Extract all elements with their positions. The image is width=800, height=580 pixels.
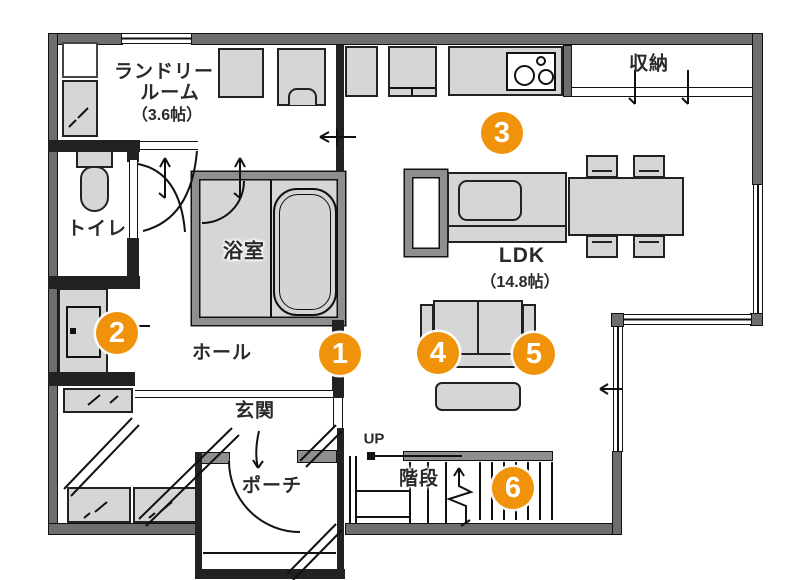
marker-6: 6 (492, 467, 534, 509)
hatch-strip (64, 418, 139, 496)
coffee-table (435, 382, 521, 411)
burner-small (536, 56, 546, 66)
window-right (753, 184, 763, 314)
window-east-step (623, 314, 752, 325)
bathroom-room (192, 172, 345, 325)
bathtub (273, 188, 337, 316)
washbasin-faucet (70, 328, 76, 334)
dining-chair (586, 235, 618, 258)
side-cabinet (62, 80, 98, 137)
closet-front-line (572, 87, 752, 97)
wall-right-upper (752, 33, 763, 185)
up-start-dot (367, 452, 375, 460)
label-bath: 浴室 (223, 235, 265, 264)
dining-table (568, 177, 684, 236)
label-ldk: LDK (499, 244, 545, 268)
genkan-opening (333, 398, 343, 428)
stairs-break-arrow (449, 468, 471, 526)
kitchen-island (447, 172, 567, 243)
marker-5: 5 (513, 333, 555, 375)
refrigerator (388, 46, 437, 97)
dining-chair (633, 155, 665, 178)
stairs-handrail (403, 451, 553, 461)
window-top (121, 33, 193, 44)
label-ldk-size: （14.8帖） (480, 268, 559, 292)
tall-cabinet (345, 46, 378, 97)
opening-arrow (159, 158, 170, 198)
island-side-unit (405, 170, 447, 256)
dining-chair (633, 235, 665, 258)
wall-washroom-bottom (48, 372, 135, 386)
corner-cabinet (62, 42, 98, 78)
toilet-door-arc (138, 164, 185, 232)
wall-porch-right (337, 428, 344, 578)
wall-bottom-stairs (345, 523, 622, 535)
burner-mid (538, 69, 554, 85)
dining-chair (586, 155, 618, 178)
porch-door-stub-left (200, 452, 230, 464)
wall-bottom-left (48, 523, 202, 535)
genkan-cabinet-left (67, 487, 131, 523)
island-sink (458, 180, 522, 221)
label-porch: ポーチ (242, 471, 302, 498)
wall-east-lower (612, 451, 622, 535)
washer (218, 48, 264, 98)
label-toilet: トイレ (67, 214, 127, 241)
wall-top-main (191, 33, 763, 45)
island-lower-line (449, 225, 565, 227)
laundry-door-arc (143, 151, 197, 231)
stairs-left-edge (350, 456, 356, 523)
shoe-cabinet-upper (63, 388, 133, 413)
toilet-bowl (80, 166, 109, 212)
entry-arrow (253, 431, 263, 468)
porch-wall-bottom (195, 569, 345, 579)
burner-large (514, 65, 535, 86)
laundry-door-opening (140, 141, 198, 150)
label-genkan: 玄関 (235, 396, 275, 423)
porch-door-stub-right (297, 450, 337, 463)
marker-2: 2 (96, 312, 138, 354)
marker-3: 3 (481, 112, 523, 154)
wall-corner-step (611, 313, 624, 327)
window-east-lower (613, 326, 623, 452)
marker-4: 4 (417, 332, 459, 374)
washing-machine-door (288, 88, 317, 105)
marker-1: 1 (319, 333, 361, 375)
wall-toilet-right-b (127, 238, 139, 278)
label-up: UP (364, 431, 385, 448)
label-stairs: 階段 (399, 464, 439, 491)
toilet-door (129, 160, 138, 238)
stairs-lower-treads (356, 491, 410, 517)
genkan-cabinet-right (133, 487, 197, 523)
label-hall: ホール (192, 338, 252, 365)
wall-laundry-kitchen (336, 45, 344, 172)
label-storage: 収納 (629, 49, 669, 76)
wall-kitchen-storage (563, 45, 572, 97)
washing-machine (277, 48, 326, 106)
label-laundry-line3: （3.6帖） (132, 101, 202, 125)
stove (506, 52, 556, 91)
floor-plan: ランドリー ルーム （3.6帖） トイレ 浴室 ホール 玄関 ポーチ 収納 LD… (0, 0, 800, 580)
